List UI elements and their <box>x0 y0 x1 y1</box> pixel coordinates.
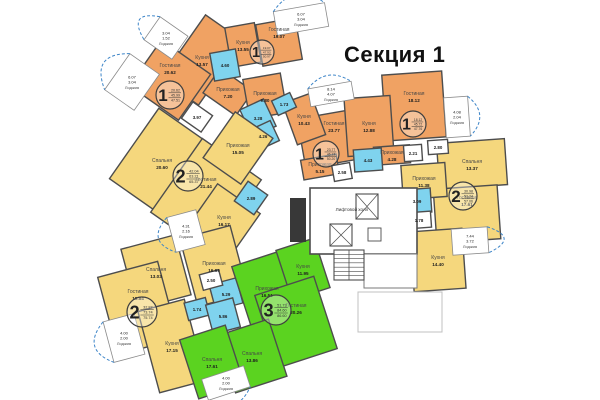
loggia-label: Лоджия <box>294 22 308 27</box>
stairs-icon <box>334 250 364 280</box>
apartment-area-value: 51.73 <box>277 303 287 307</box>
room-area: 5.15 <box>316 169 325 174</box>
elevator-icon <box>330 224 352 246</box>
loggia-area-half: 2.00 <box>222 381 231 386</box>
loggia-area-half: 3.04 <box>128 80 137 85</box>
room-name: Спальня <box>202 357 222 363</box>
room-name: Спальня <box>242 351 262 357</box>
floorplan-svg: Лифтовой холлКухня13.57Гостиная20.62Прих… <box>0 0 600 400</box>
room-area: 2.50 <box>207 278 216 283</box>
floorplan-canvas: Лифтовой холлКухня13.57Гостиная20.62Прих… <box>0 0 600 400</box>
loggia <box>444 95 482 137</box>
room-area: 17.15 <box>166 348 178 353</box>
room-area: 15.05 <box>232 150 244 155</box>
room-area: 4.43 <box>364 158 373 163</box>
room-area: 2.89 <box>247 196 256 201</box>
room-area: 2.80 <box>434 145 443 150</box>
loggia-area-half: 3.04 <box>297 17 306 22</box>
apartment-area-value: 47.51 <box>171 99 180 103</box>
apartment-badge-1D: 118.1245.7247.76 <box>400 111 426 137</box>
apartment-badge-1A: 120.6245.9947.51 <box>156 81 184 109</box>
apartment-number: 2 <box>129 302 139 322</box>
room-area: 2.21 <box>409 151 418 156</box>
apartment-area-value: 75.74 <box>143 316 153 320</box>
loggia-label: Лоджия <box>179 234 193 239</box>
loggia-label: Лоджия <box>324 97 338 102</box>
apartment-number: 3 <box>263 300 273 320</box>
loggia-area-half: 1.52 <box>162 36 171 41</box>
core-annex <box>364 254 417 288</box>
room-area: 5.29 <box>222 292 231 297</box>
room-name: Прихожая <box>380 150 403 156</box>
apartment-badge-1C: 123.7746.1350.20 <box>313 141 339 167</box>
room-area: 18.12 <box>408 98 420 103</box>
shaft <box>290 198 306 242</box>
apartment-badge-2B: 232.8773.7475.74 <box>127 297 157 327</box>
room-area: 1.78 <box>415 218 424 223</box>
loggia-label: Лоджия <box>450 120 464 125</box>
room-name: Кухня <box>431 255 445 261</box>
room-area: 4.28 <box>388 157 397 162</box>
room-area: 2.58 <box>338 170 347 175</box>
room-name: Кухня <box>195 55 209 61</box>
room-area: 1.74 <box>193 307 202 312</box>
terrace-outline <box>358 292 442 332</box>
loggia-area-half: 2.00 <box>120 336 129 341</box>
loggia-area-half: 2.16 <box>182 229 191 234</box>
apartment-number: 1 <box>315 147 324 164</box>
apartment-area-value: 47.76 <box>414 127 422 131</box>
room-area: 13.57 <box>196 62 208 67</box>
apartment-number: 1 <box>252 45 260 61</box>
apartment-area-value: 45.72 <box>414 122 422 126</box>
room-name: Прихожая <box>216 87 239 93</box>
room-area: 20.62 <box>164 70 176 75</box>
room-area: 3.09 <box>413 199 422 204</box>
apartment-badge-3: 351.7384.6086.60 <box>261 295 291 325</box>
room-name: Прихожая <box>253 91 276 97</box>
loggia-label: Лоджия <box>125 85 139 90</box>
room-area: 3.28 <box>254 116 263 121</box>
room-name: Прихожая <box>255 286 278 292</box>
room-name: Гостиная <box>269 27 290 33</box>
room-name: Кухня <box>236 40 250 46</box>
room-area: 13.03 <box>150 274 162 279</box>
apartment-area-value: 53.34 <box>464 195 473 199</box>
room-name: Гостиная <box>160 63 181 69</box>
apartment-badge-2A: 242.0463.2165.37 <box>173 161 203 191</box>
apartment-area-value: 50.20 <box>327 157 335 161</box>
room-name: Кухня <box>165 341 179 347</box>
room-area: 16.17 <box>218 222 230 227</box>
apartment-area-value: 73.74 <box>143 311 153 315</box>
room-name: Гостиная <box>128 289 149 295</box>
room-area: 12.88 <box>363 128 375 133</box>
room-area: 19.07 <box>273 34 285 39</box>
apartment-number: 1 <box>158 86 167 105</box>
room-area: 13.55 <box>237 47 249 52</box>
room-area: 13.86 <box>246 358 258 363</box>
room-area: 3.97 <box>193 115 202 120</box>
room-area: 17.61 <box>206 364 218 369</box>
apartment-area-value: 42.04 <box>189 169 199 173</box>
room-area: 11.95 <box>297 271 309 276</box>
room-name: Спальня <box>462 159 482 165</box>
room-area: 4.26 <box>259 134 268 139</box>
room-area: 13.37 <box>466 166 478 171</box>
loggia-label: Лоджия <box>463 244 477 249</box>
room-name: Спальня <box>152 158 172 164</box>
section-title: Секция 1 <box>344 42 445 68</box>
apartment-area-value: 65.37 <box>189 180 199 184</box>
apartment-badge-2C: 230.9853.3457.06 <box>449 182 477 210</box>
apartment-area-value: 50.97 <box>263 55 271 59</box>
apartment-area-value: 46.13 <box>327 152 335 156</box>
loggia-area-half: 4.07 <box>327 92 336 97</box>
room-area: 11.38 <box>418 183 430 188</box>
room-area: 20.60 <box>156 165 168 170</box>
room-name: Гостиная <box>324 121 345 127</box>
room-name: Спальня <box>146 267 166 273</box>
loggia-area-half: 2.04 <box>453 115 462 120</box>
loggia-label: Лоджия <box>219 386 233 391</box>
apartment-area-value: 84.60 <box>277 309 287 313</box>
duct <box>368 228 381 241</box>
room-area: 4.60 <box>221 63 230 68</box>
loggia-label: Лоджия <box>117 341 131 346</box>
apartment-area-value: 57.06 <box>464 200 473 204</box>
apartment-area-value: 32.87 <box>143 305 153 309</box>
apartment-badge-1B: 119.0747.9350.97 <box>250 40 274 64</box>
room-area: 23.77 <box>328 128 340 133</box>
loggia-area-half: 3.72 <box>466 239 475 244</box>
room-name: Прихожая <box>202 261 225 267</box>
apartment-area-value: 86.60 <box>277 314 287 318</box>
room-area: 9.80 <box>261 98 270 103</box>
room-name: Кухня <box>217 215 231 221</box>
room-name: Кухня <box>362 121 376 127</box>
loggia <box>91 44 159 110</box>
elevator-hall-label: Лифтовой холл <box>336 206 369 212</box>
apartment-number: 1 <box>402 117 411 134</box>
room-area: 14.40 <box>432 262 444 267</box>
apartment-area-value: 20.62 <box>171 89 180 93</box>
room-name: Прихожая <box>412 176 435 182</box>
loggia-label: Лоджия <box>159 41 173 46</box>
room-name: Кухня <box>297 114 311 120</box>
apartment-number: 2 <box>175 166 185 186</box>
apartment-number: 2 <box>451 187 460 206</box>
room-name: Прихожая <box>226 143 249 149</box>
room-area: 16.69 <box>208 268 220 273</box>
apartment-area-value: 18.12 <box>414 118 422 122</box>
room-area: 5.86 <box>219 314 228 319</box>
room-area: 7.20 <box>224 94 233 99</box>
room-area: 1.73 <box>280 102 289 107</box>
room-area: 20.26 <box>290 310 302 315</box>
apartment-area-value: 45.99 <box>171 94 180 98</box>
room-area: 21.44 <box>200 184 212 189</box>
room-name: Кухня <box>296 264 310 270</box>
apartment-area-value: 30.98 <box>464 190 473 194</box>
room-name: Гостиная <box>404 91 425 97</box>
apartment-area-value: 63.21 <box>189 175 199 179</box>
apartment-area-value: 23.77 <box>327 148 335 152</box>
room-area: 10.43 <box>298 121 310 126</box>
